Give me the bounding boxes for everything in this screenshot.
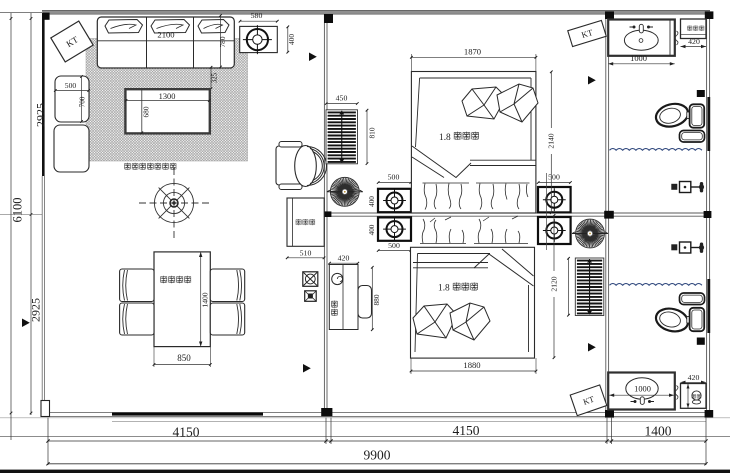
svg-text:4150: 4150 [453,423,480,438]
svg-text:9900: 9900 [364,448,391,463]
svg-text:325: 325 [212,72,219,83]
svg-text:2925: 2925 [29,298,43,322]
svg-text:510: 510 [300,248,312,257]
svg-text:1880: 1880 [463,360,480,370]
svg-text:2925: 2925 [34,103,48,127]
svg-text:1400: 1400 [645,424,672,439]
svg-text:1300: 1300 [159,92,176,101]
svg-text:580: 580 [251,11,263,20]
svg-text:450: 450 [336,94,348,103]
svg-text:1.8: 1.8 [439,133,451,143]
svg-text:1400: 1400 [201,292,210,307]
svg-text:500: 500 [388,241,400,250]
svg-text:880: 880 [372,294,381,305]
svg-text:2140: 2140 [547,133,556,148]
svg-text:400: 400 [287,34,296,45]
svg-text:780: 780 [218,36,227,47]
svg-text:1870: 1870 [464,46,481,56]
svg-text:400: 400 [368,224,376,235]
svg-text:810: 810 [368,127,377,138]
svg-text:1000: 1000 [634,385,651,394]
svg-text:420: 420 [688,37,700,46]
svg-text:420: 420 [688,373,700,382]
svg-text:1.8: 1.8 [438,284,450,294]
svg-text:2100: 2100 [157,30,174,40]
svg-text:6100: 6100 [11,198,25,223]
svg-text:400: 400 [368,196,376,207]
svg-text:850: 850 [177,353,191,363]
svg-text:420: 420 [338,253,350,262]
svg-text:500: 500 [65,81,77,90]
svg-text:4150: 4150 [173,425,200,440]
svg-text:680: 680 [142,106,151,117]
svg-text:500: 500 [548,173,560,182]
svg-text:2120: 2120 [550,276,559,291]
svg-text:500: 500 [388,173,400,182]
svg-text:1000: 1000 [630,54,647,63]
svg-text:700: 700 [79,96,87,107]
